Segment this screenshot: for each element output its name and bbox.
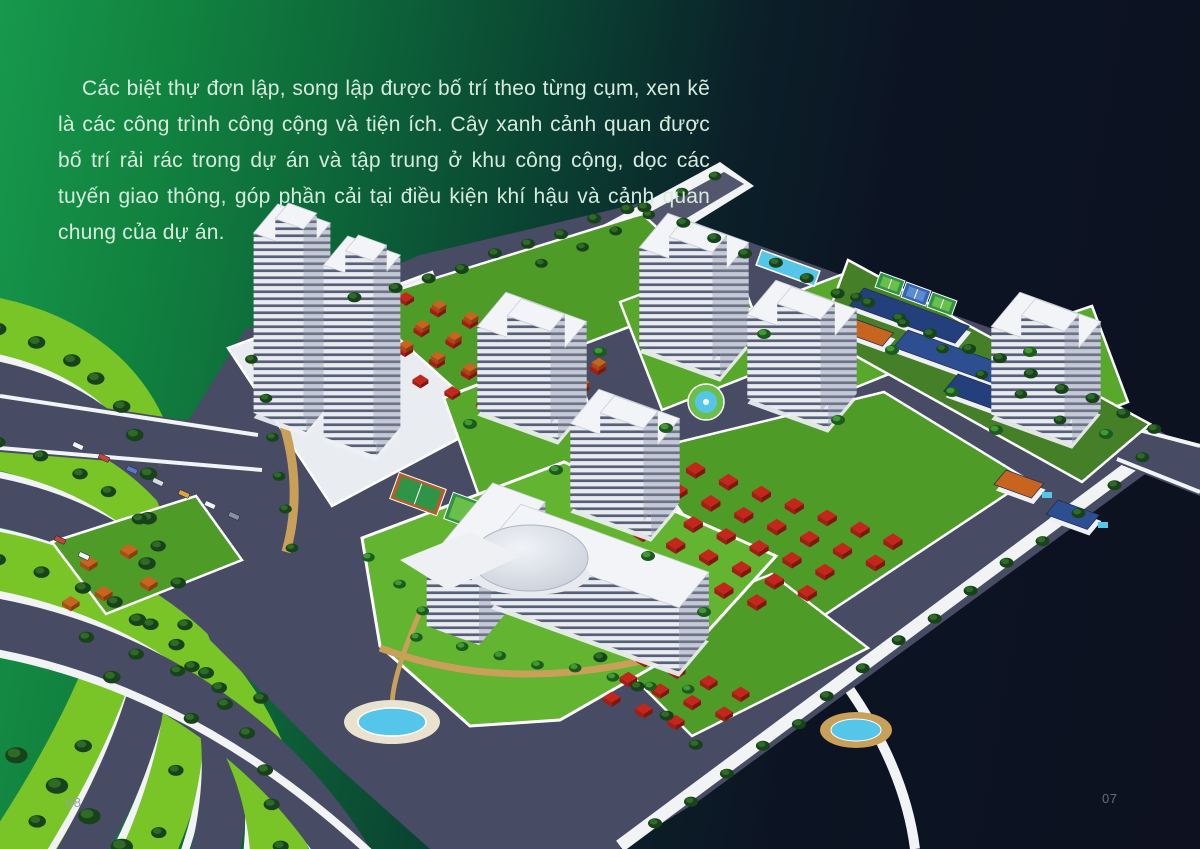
intro-paragraph: Các biệt thự đơn lập, song lập được bố t… — [58, 71, 710, 251]
page-number-right: 07 — [1102, 791, 1117, 806]
page-number-left: 08 — [66, 795, 81, 810]
brochure-page: Các biệt thự đơn lập, song lập được bố t… — [0, 0, 1200, 849]
